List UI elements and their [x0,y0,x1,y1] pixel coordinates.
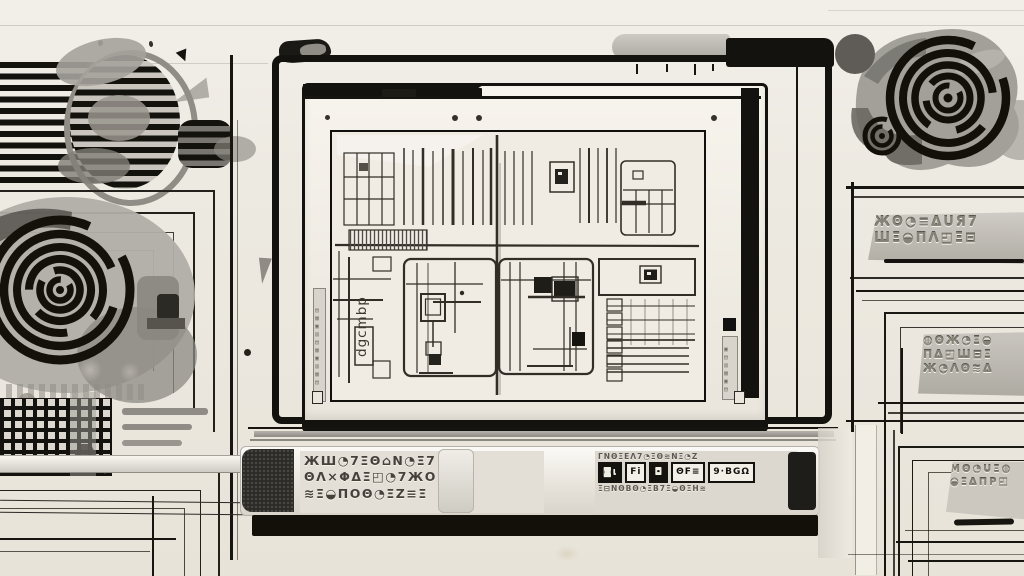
gray-wisp [214,136,256,162]
artwork-canvas: ▼ [0,0,1024,576]
embossed-plate-2: ◍ΘЖ◔Ξ◒ ΠΔ◰Ш⊟Ξ Ж◔ΛΘ≋Δ [918,332,1024,396]
bg-rule-right [828,10,1024,11]
drawer2-cross-h [878,402,1024,404]
glyph-row: ΓΝΘΞΕΛ7◔ΞΘ≋ΝΞ◔Ζ [598,452,794,461]
bezel-screw [711,115,717,121]
frame-tick [666,64,668,72]
label-chip: 9·BGΩ [708,462,755,483]
tray-shadow-bar [252,515,818,536]
shelf-gray-strip [254,431,834,437]
gray-stroke [122,424,192,430]
small-triangle-mark [257,258,272,285]
white-slab [855,425,877,575]
drawer1-line [846,186,1024,189]
drawer3-bottom-line [905,530,1024,531]
gray-smear [88,95,150,141]
tray-label-right: ΓΝΘΞΕΛ7◔ΞΘ≋ΝΞ◔Ζ ◙ιFi◘ΘF≡9·BGΩ Ξ⊟ΝΘΒΘ◔ΞΒ7… [595,451,797,513]
soft-blob [78,358,102,382]
drawer1-bottom-line [850,277,1024,279]
shelf-line-top [248,427,838,429]
faint-spot [554,546,580,562]
left-vertical-line [230,55,233,560]
tray-label-left: ЖШ◔7ΞΘ⌂Ν◔Ξ7 ΘΛ×ΦΔΞ◰◔7ЖΟ ≋Ξ◒ΠΟΘ◔ΞΖ≡Ξ [300,451,544,513]
tray-grip [242,449,294,512]
glyph-row: ≋Ξ◒ΠΟΘ◔ΞΖ≡Ξ [304,486,540,502]
drawer3-vline [884,418,886,576]
soft-blob [120,362,140,382]
bl-frame-3 [0,508,185,576]
drawer3-bottom-line2 [896,541,1024,543]
drawer2-line [856,290,1024,292]
drawer3-top-line [846,420,1024,422]
bl-rule [0,538,176,540]
bezel-corner-mark [312,391,323,404]
shelf-line-bottom [250,439,836,441]
frame-tick [636,64,638,74]
glyph-row: ◍ΘЖ◔Ξ◒ [923,334,1024,348]
gray-gap-band [818,428,852,558]
chip-row: ◙ιFi◘ΘF≡9·BGΩ [598,462,794,483]
bezel-screw [452,115,458,121]
gray-stroke [122,408,208,415]
bl-vertical [152,496,154,576]
glyph-row: Ξ⊟ΝΘΒΘ◔ΞΒ7Ξ◒ΘΞΗ≋ [598,484,794,493]
glyph-row: ΠΔ◰Ш⊟Ξ [923,348,1024,362]
bezel-tab [436,88,482,97]
drawer2-cross-h2 [888,412,1024,414]
bezel-corner-mark [734,391,745,404]
pen-rod [0,455,244,473]
glyph-row: ΘΛ×ΦΔΞ◰◔7ЖΟ [304,469,540,485]
glyph-row: ЖШ◔7ΞΘ⌂Ν◔Ξ7 [304,453,540,469]
bezel-screw [325,115,330,120]
screen-vertical-label: dgcmbp [354,296,370,357]
tray-eraser [438,449,474,513]
label-chip: Fi [625,462,646,483]
spiral-right [830,12,1024,197]
bezel-top-line [303,96,761,99]
glyph-row: Ж◔ΛΘ≋Δ [923,362,1024,376]
bezel-screw [476,115,482,121]
gray-smear [58,148,130,184]
drawer1-line [852,196,1024,198]
right-vertical-line [851,182,854,432]
frame-tick [694,64,696,75]
glyph-row: ΜΘ◔UΞ◍ [950,464,1024,477]
glyph-row: ШΞ◒ΠΛ◰Ξ⊟ [874,231,1024,247]
bezel-small-square [723,318,736,331]
embossed-plate-3: ΜΘ◔UΞ◍ ◒ΞΔΠР◰ [946,462,1024,520]
left-vertical-line-thin [237,120,238,560]
ink-dot [149,41,154,48]
tray-end-cap [788,452,816,510]
label-chip: ◘ [649,462,668,483]
glyph-row: ЖΘ◔≡ΔUЯ7 [874,215,1024,231]
drawer3-bottom-line4 [908,560,1024,562]
monitor-right-thin-line [796,62,798,417]
bl-rule [0,551,150,552]
gray-stroke [122,440,182,446]
embossed-plate-1: ЖΘ◔≡ΔUЯ7 ШΞ◒ΠΛ◰Ξ⊟ [868,212,1024,264]
screen-sketch: dgcmbp [333,133,701,397]
plate1-shadow [884,259,1024,263]
drawer3-bottom-line3 [848,554,1024,555]
ink-dot [244,349,251,356]
glyph-row: ◒ΞΔΠР◰ [950,477,1024,490]
drawer3-ink-stroke [954,518,1014,525]
label-chip: ΘF≡ [671,462,705,483]
bezel-left-glyph-strip: ▤▦▥▣▦▤▥▣▦▤ [313,288,326,402]
drawer2-line [862,300,1024,301]
bezel-right-black-strip [741,88,759,398]
frame-tick [712,64,714,71]
bezel-tab [382,89,416,97]
label-chip: ◙ι [598,462,622,483]
